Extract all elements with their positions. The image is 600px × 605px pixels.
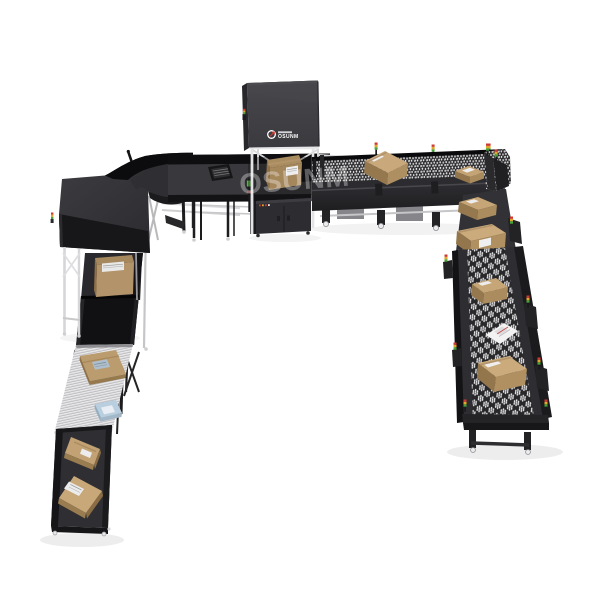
svg-text:OSUNM: OSUNM	[278, 134, 299, 140]
